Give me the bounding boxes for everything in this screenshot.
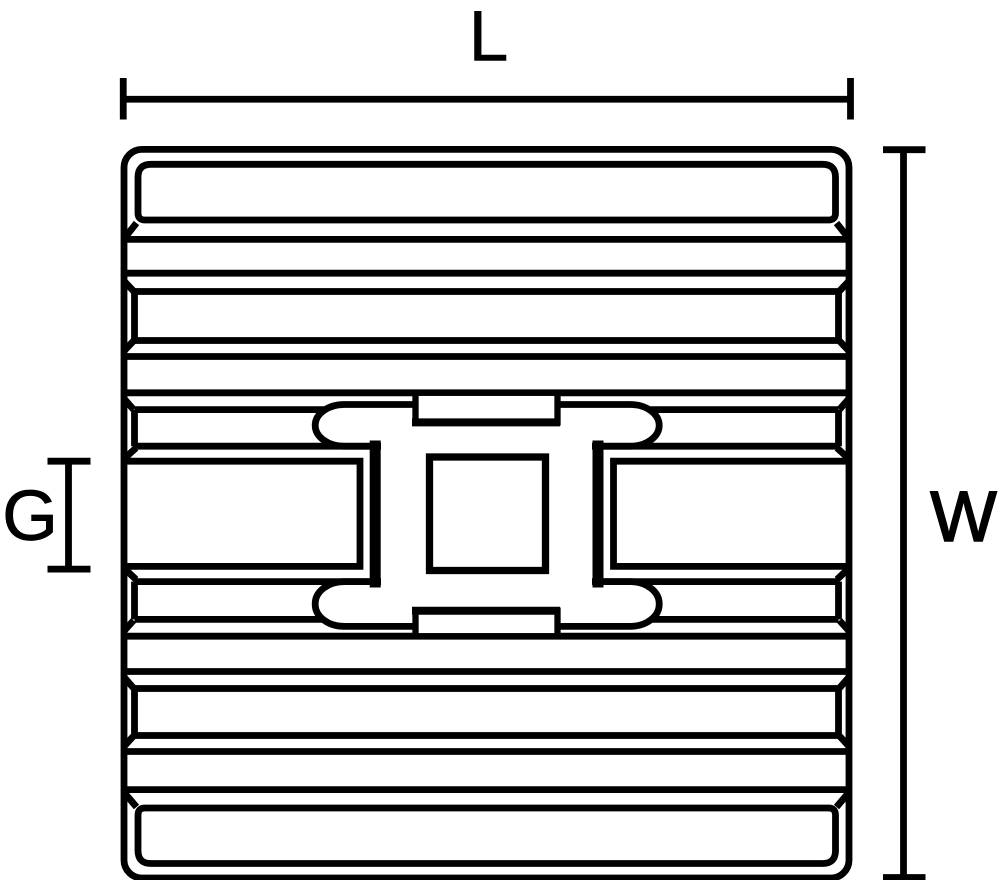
- svg-text:G: G: [2, 476, 58, 556]
- svg-text:L: L: [469, 0, 509, 77]
- svg-text:W: W: [930, 477, 997, 557]
